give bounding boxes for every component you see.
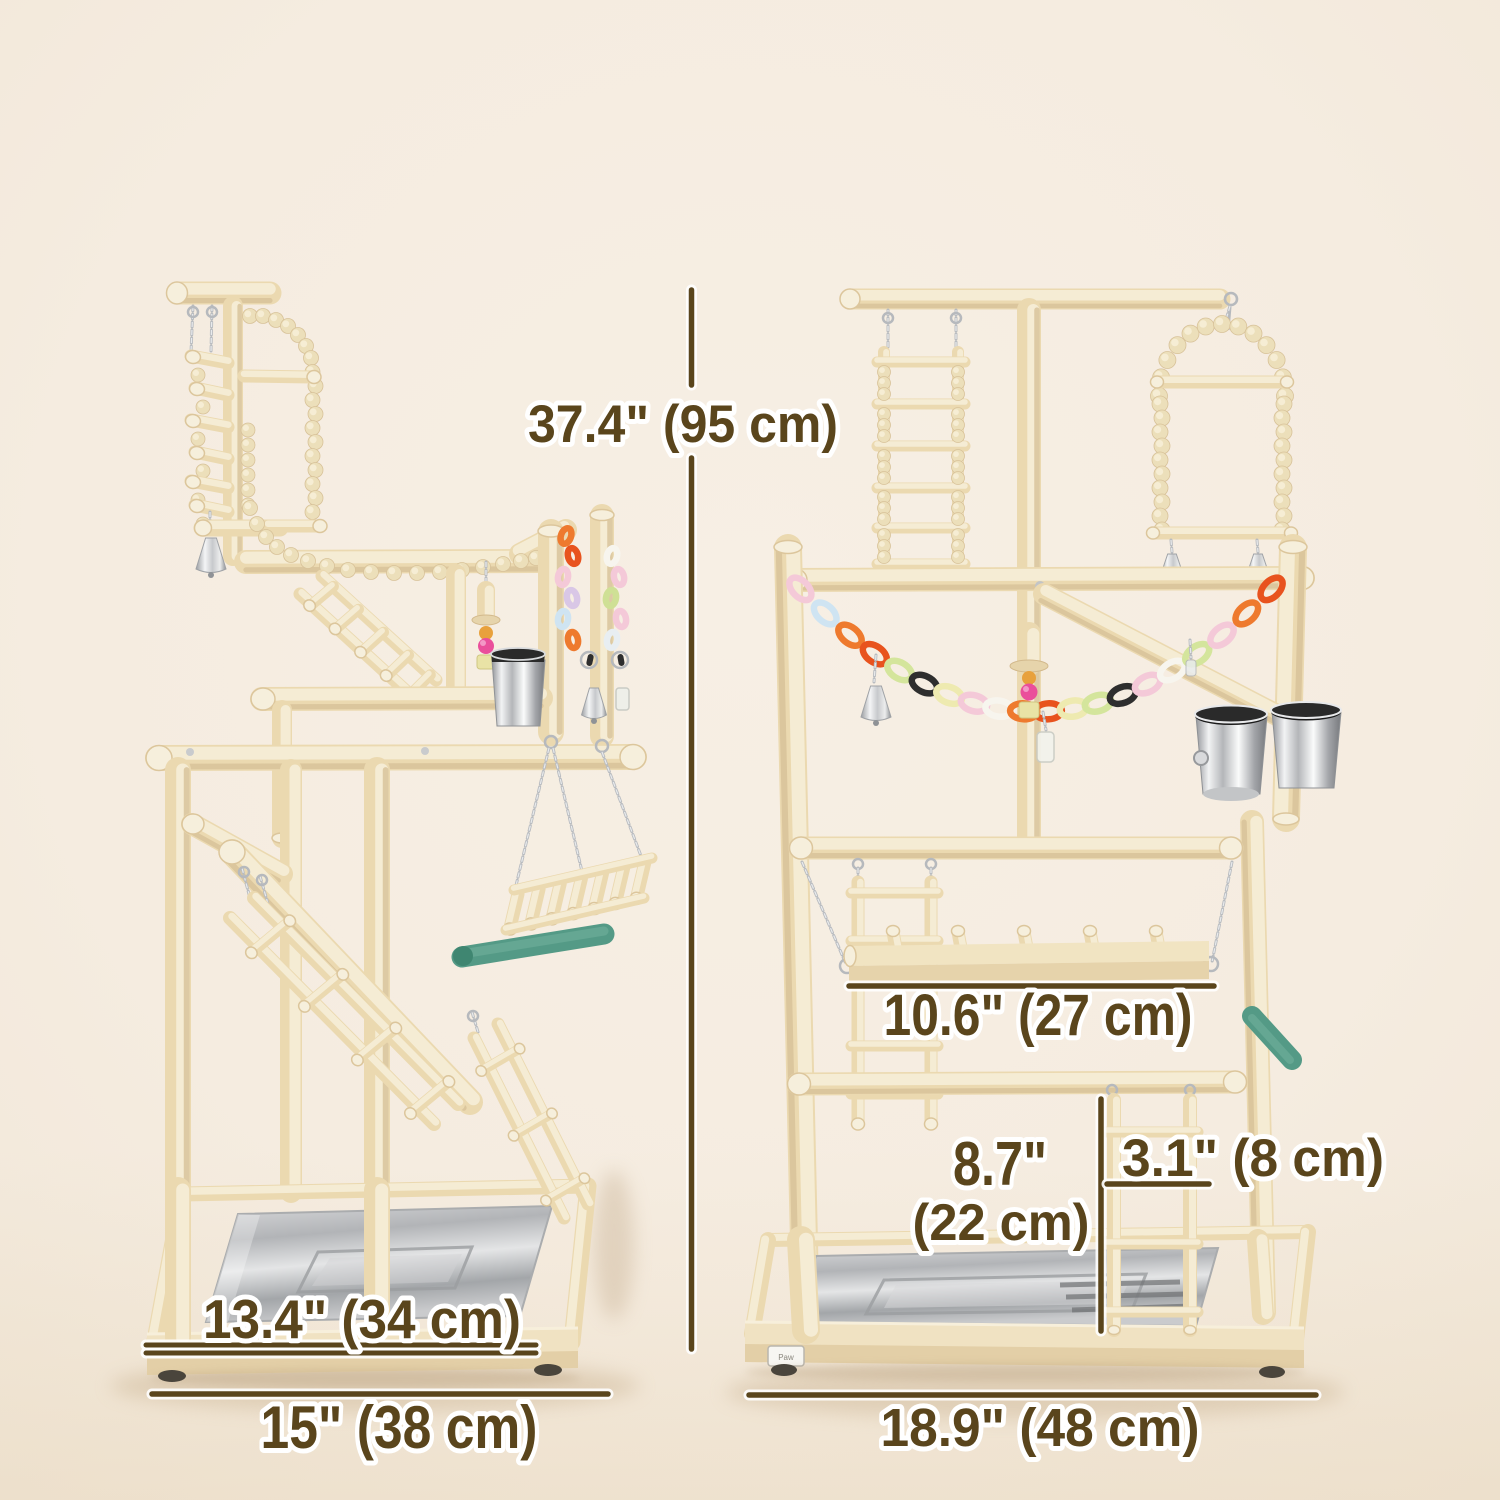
svg-text:Paw: Paw <box>778 1353 794 1362</box>
svg-text:13.4" (34 cm): 13.4" (34 cm) <box>203 1288 521 1350</box>
svg-text:3.1" (8 cm): 3.1" (8 cm) <box>1122 1129 1384 1188</box>
svg-text:10.6" (27 cm): 10.6" (27 cm) <box>884 983 1193 1048</box>
svg-text:18.9" (48 cm): 18.9" (48 cm) <box>881 1398 1200 1458</box>
svg-text:15" (38 cm): 15" (38 cm) <box>261 1394 538 1461</box>
svg-text:37.4" (95 cm): 37.4" (95 cm) <box>528 395 838 454</box>
svg-text:8.7": 8.7" <box>953 1130 1047 1199</box>
svg-text:(22 cm): (22 cm) <box>913 1194 1090 1252</box>
